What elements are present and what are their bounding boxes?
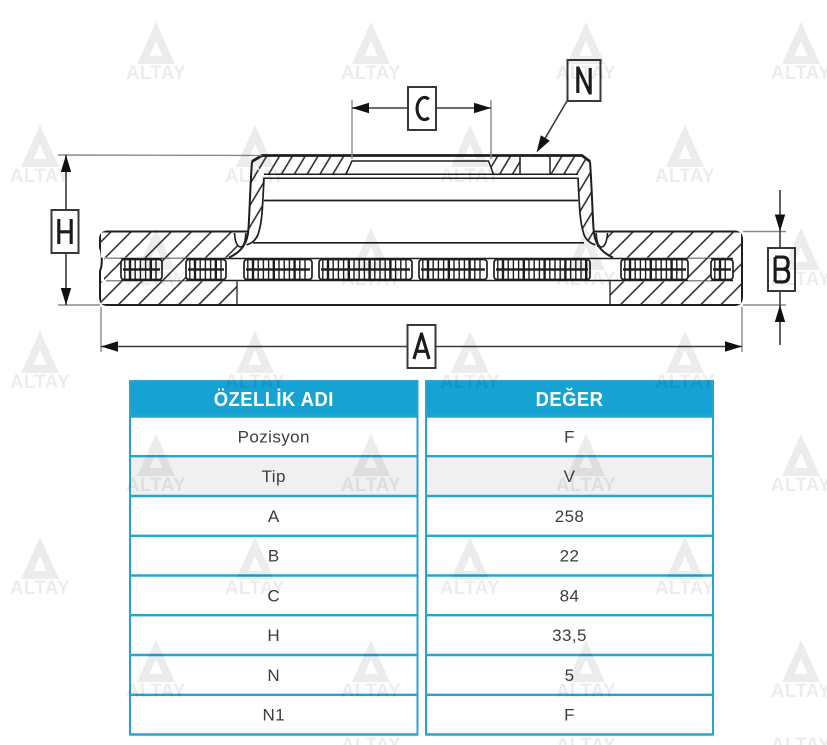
svg-text:ALTAY: ALTAY	[771, 734, 827, 745]
svg-text:ALTAY: ALTAY	[771, 268, 827, 289]
svg-text:ALTAY: ALTAY	[341, 680, 401, 701]
svg-text:ALTAY: ALTAY	[225, 165, 285, 186]
svg-text:ALTAY: ALTAY	[126, 268, 186, 289]
svg-text:ALTAY: ALTAY	[225, 371, 285, 392]
svg-text:A: A	[268, 507, 280, 526]
svg-text:ALTAY: ALTAY	[10, 165, 70, 186]
svg-text:ALTAY: ALTAY	[771, 474, 827, 495]
svg-text:ALTAY: ALTAY	[771, 680, 827, 701]
svg-text:ALTAY: ALTAY	[10, 577, 70, 598]
svg-text:84: 84	[560, 586, 580, 605]
svg-text:ALTAY: ALTAY	[10, 371, 70, 392]
svg-text:ALTAY: ALTAY	[771, 62, 827, 83]
svg-text:ALTAY: ALTAY	[341, 474, 401, 495]
svg-text:H: H	[267, 626, 280, 645]
svg-text:ALTAY: ALTAY	[655, 371, 715, 392]
svg-text:ALTAY: ALTAY	[341, 268, 401, 289]
svg-text:N1: N1	[262, 706, 285, 725]
svg-text:B: B	[268, 547, 280, 566]
svg-text:ALTAY: ALTAY	[655, 165, 715, 186]
svg-text:Tip: Tip	[262, 467, 286, 486]
svg-text:258: 258	[555, 507, 585, 526]
svg-text:ALTAY: ALTAY	[556, 680, 616, 701]
svg-text:ALTAY: ALTAY	[440, 165, 500, 186]
svg-text:ALTAY: ALTAY	[341, 62, 401, 83]
svg-text:ALTAY: ALTAY	[556, 474, 616, 495]
svg-text:ALTAY: ALTAY	[126, 474, 186, 495]
svg-text:ALTAY: ALTAY	[126, 680, 186, 701]
svg-text:33,5: 33,5	[552, 626, 587, 645]
svg-text:ALTAY: ALTAY	[440, 577, 500, 598]
svg-text:F: F	[564, 706, 575, 725]
svg-text:Pozisyon: Pozisyon	[238, 427, 310, 446]
svg-text:22: 22	[560, 547, 580, 566]
svg-text:ALTAY: ALTAY	[225, 577, 285, 598]
svg-text:ALTAY: ALTAY	[556, 62, 616, 83]
svg-text:N: N	[267, 666, 280, 685]
svg-text:ALTAY: ALTAY	[556, 268, 616, 289]
svg-text:ALTAY: ALTAY	[126, 62, 186, 83]
svg-text:ALTAY: ALTAY	[556, 734, 616, 745]
svg-text:ALTAY: ALTAY	[341, 734, 401, 745]
svg-text:ALTAY: ALTAY	[440, 371, 500, 392]
svg-text:DEĞER: DEĞER	[536, 387, 604, 411]
svg-text:ALTAY: ALTAY	[655, 577, 715, 598]
svg-text:F: F	[564, 427, 575, 446]
